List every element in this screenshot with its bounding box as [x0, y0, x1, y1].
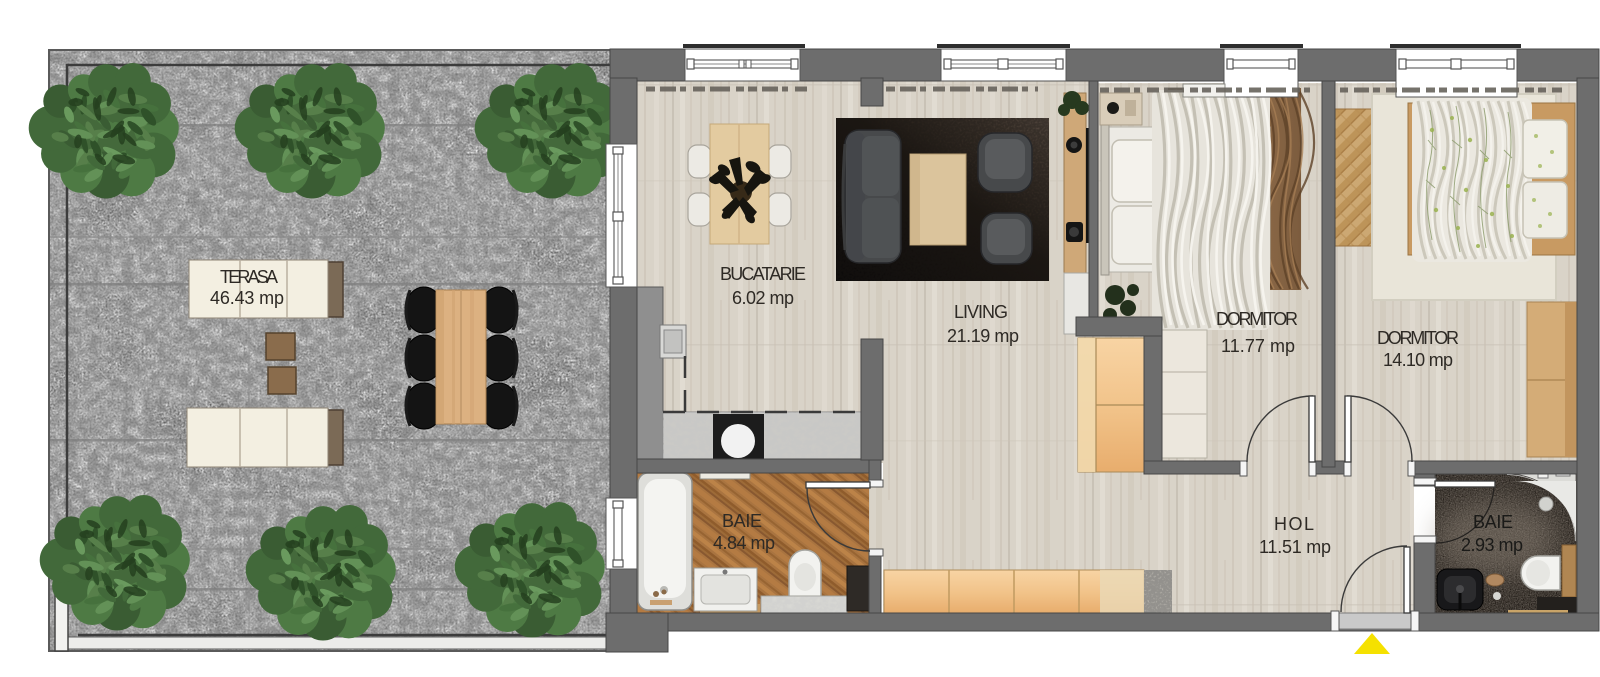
- svg-text:6.02 mp: 6.02 mp: [732, 288, 794, 308]
- svg-text:11.77 mp: 11.77 mp: [1221, 336, 1295, 356]
- svg-text:14.10 mp: 14.10 mp: [1383, 350, 1453, 370]
- svg-text:BAIE: BAIE: [722, 511, 762, 531]
- svg-text:HOL: HOL: [1274, 514, 1314, 534]
- svg-text:TERASA: TERASA: [220, 267, 278, 287]
- svg-text:DORMITOR: DORMITOR: [1216, 309, 1298, 329]
- svg-text:LIVING: LIVING: [954, 302, 1008, 322]
- svg-text:46.43 mp: 46.43 mp: [210, 288, 284, 308]
- svg-text:DORMITOR: DORMITOR: [1377, 328, 1459, 348]
- svg-text:21.19 mp: 21.19 mp: [947, 326, 1019, 346]
- svg-text:4.84 mp: 4.84 mp: [713, 533, 775, 553]
- svg-text:2.93 mp: 2.93 mp: [1461, 535, 1523, 555]
- svg-text:BUCATARIE: BUCATARIE: [720, 264, 806, 284]
- svg-text:11.51 mp: 11.51 mp: [1259, 537, 1331, 557]
- svg-text:BAIE: BAIE: [1473, 512, 1513, 532]
